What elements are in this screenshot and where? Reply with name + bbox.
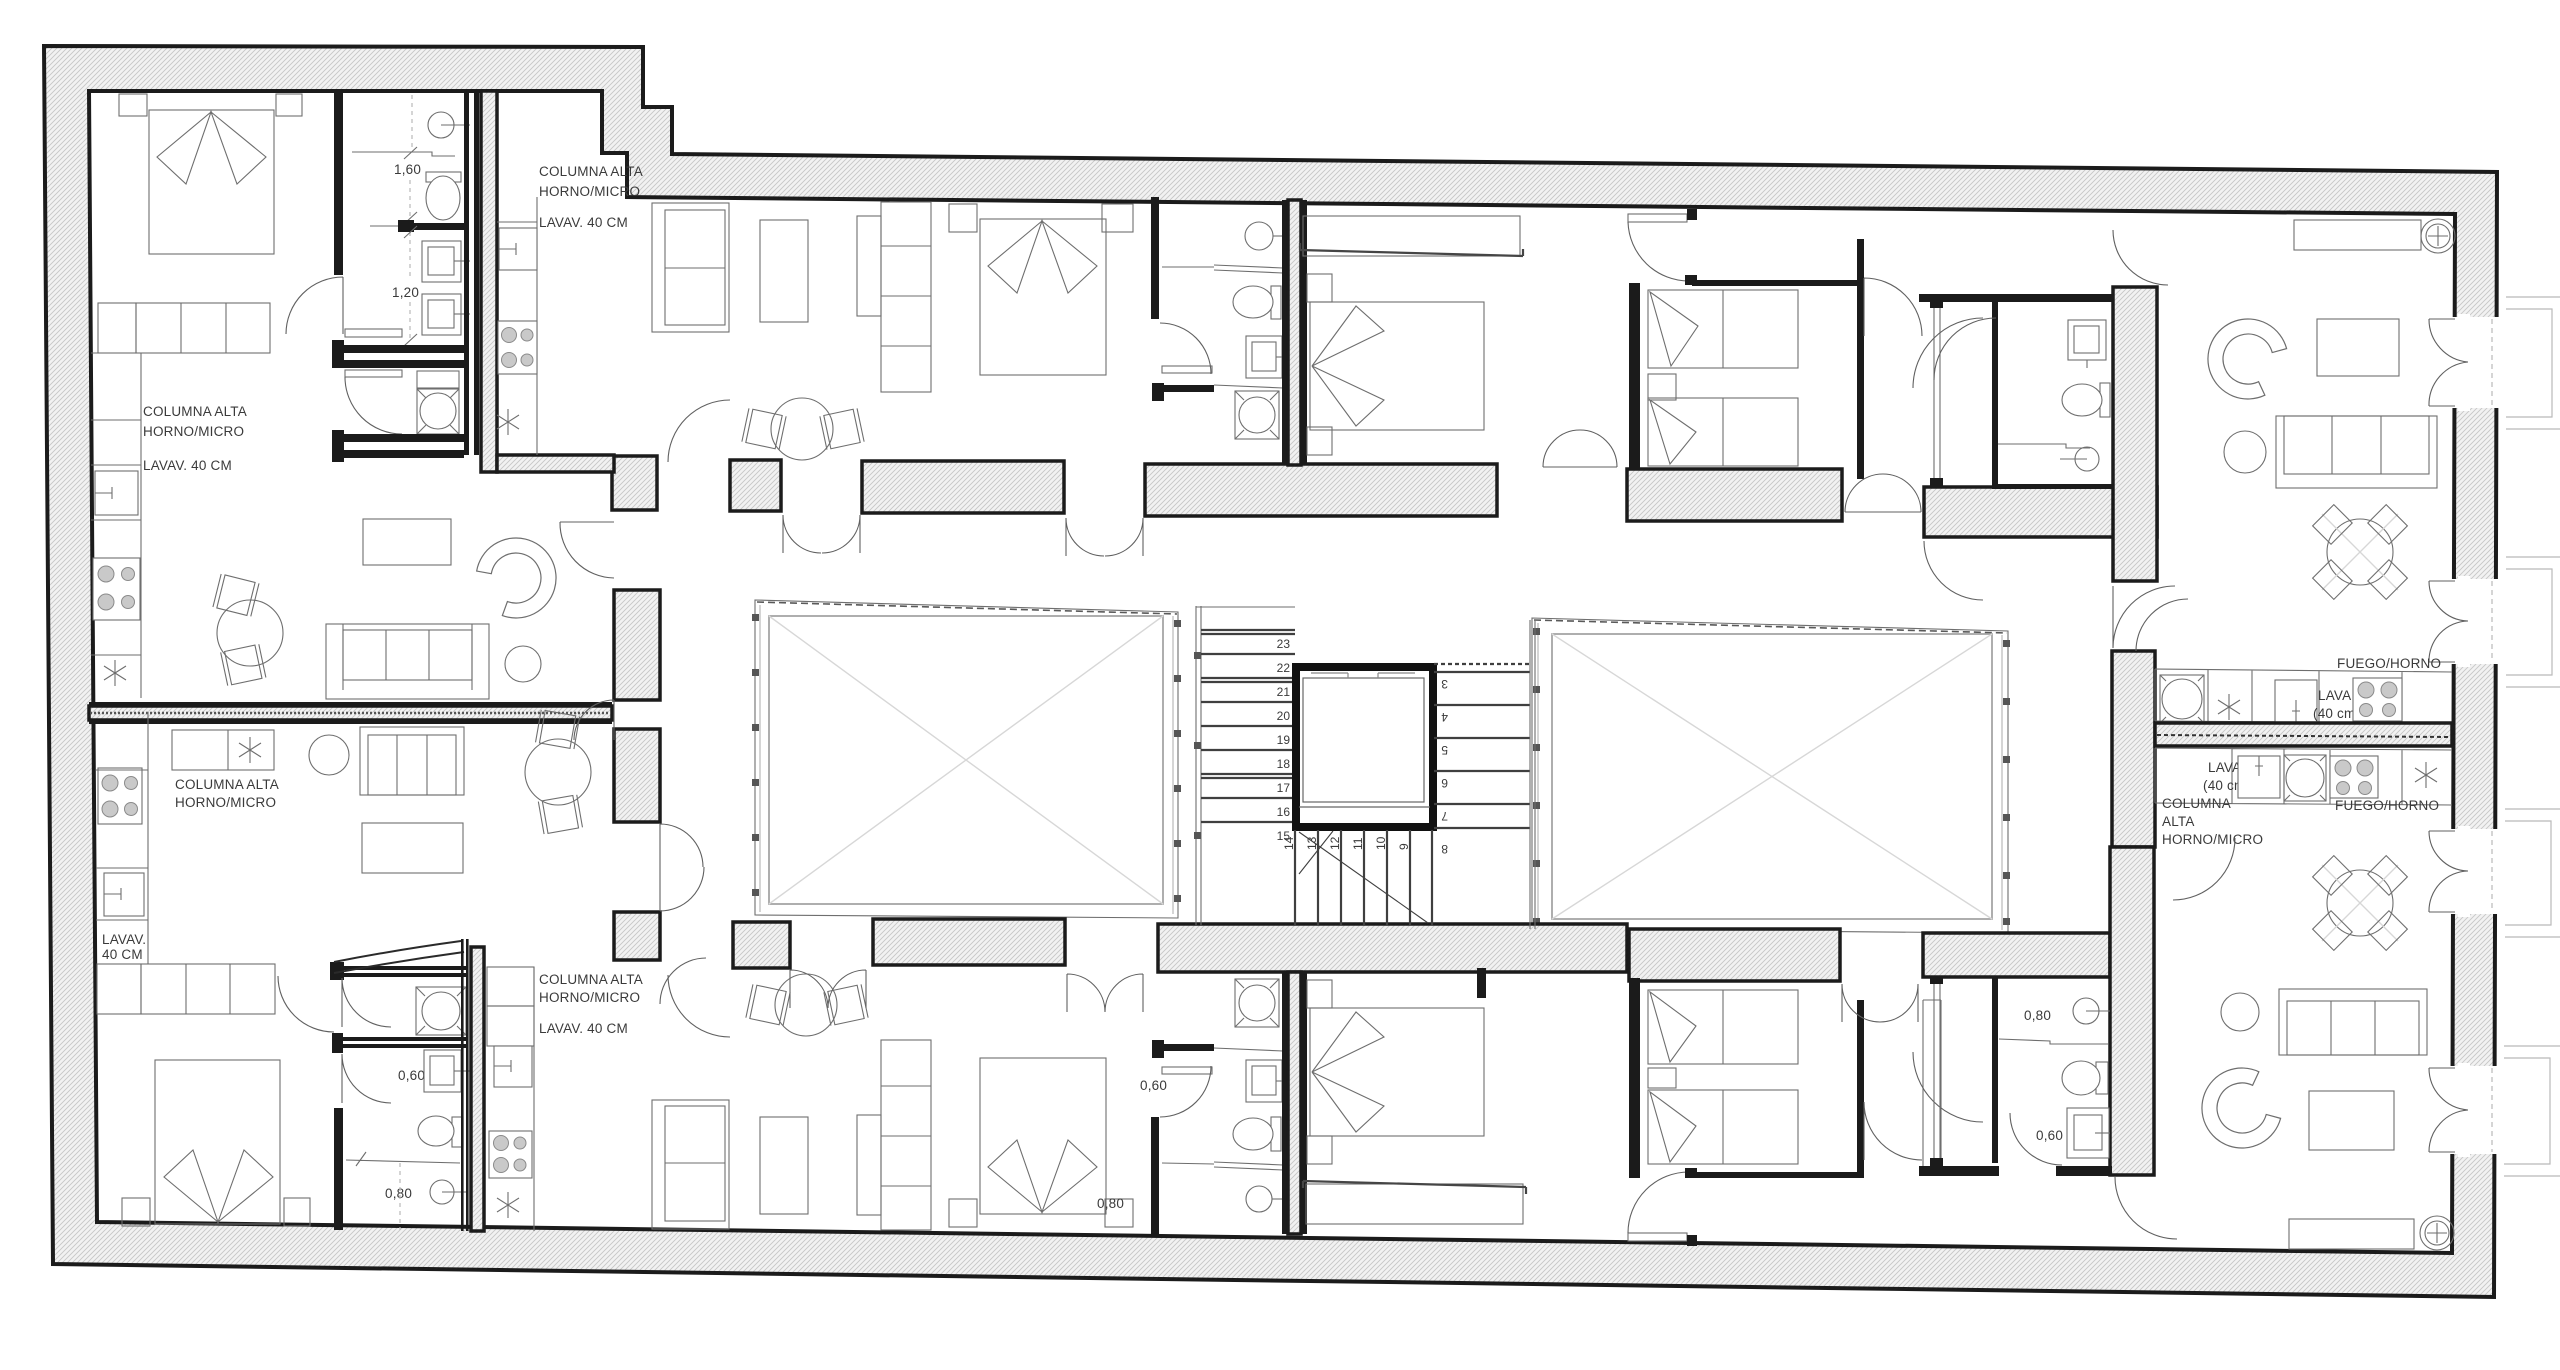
svg-text:COLUMNA ALTA: COLUMNA ALTA [143,404,247,419]
svg-text:FUEGO/HORNO: FUEGO/HORNO [2335,798,2439,813]
svg-text:COLUMNA ALTA: COLUMNA ALTA [539,972,643,987]
svg-text:11: 11 [1351,837,1365,850]
svg-text:12: 12 [1328,836,1342,850]
svg-text:6: 6 [1441,776,1448,790]
svg-text:14: 14 [1282,836,1296,850]
svg-text:8: 8 [1441,842,1448,856]
svg-text:17: 17 [1277,781,1291,795]
svg-text:13: 13 [1305,836,1319,850]
svg-text:FUEGO/HORNO: FUEGO/HORNO [2337,656,2441,671]
svg-text:0,60: 0,60 [1140,1078,1167,1093]
svg-text:40 CM: 40 CM [102,947,143,962]
svg-text:COLUMNA ALTA: COLUMNA ALTA [539,164,643,179]
svg-text:HORNO/MICRO: HORNO/MICRO [2162,832,2263,847]
svg-text:16: 16 [1277,805,1291,819]
svg-text:21: 21 [1277,685,1291,699]
svg-text:LAVA: LAVA [2208,760,2241,775]
svg-text:LAVAV. 40 CM: LAVAV. 40 CM [143,458,232,473]
svg-text:7: 7 [1441,809,1448,823]
svg-text:LAVA: LAVA [2318,688,2351,703]
svg-text:22: 22 [1277,661,1291,675]
svg-text:COLUMNA: COLUMNA [2162,796,2231,811]
svg-text:HORNO/MICRO: HORNO/MICRO [539,184,640,199]
svg-text:23: 23 [1277,637,1291,651]
svg-text:3: 3 [1441,677,1448,691]
svg-text:ALTA: ALTA [2162,814,2195,829]
svg-text:COLUMNA ALTA: COLUMNA ALTA [175,777,279,792]
svg-text:HORNO/MICRO: HORNO/MICRO [539,990,640,1005]
svg-text:0,80: 0,80 [1097,1196,1124,1211]
svg-text:4: 4 [1441,710,1448,724]
svg-text:HORNO/MICRO: HORNO/MICRO [143,424,244,439]
svg-text:18: 18 [1277,757,1291,771]
svg-text:19: 19 [1277,733,1291,747]
svg-text:9: 9 [1397,843,1411,850]
svg-text:LAVAV. 40 CM: LAVAV. 40 CM [539,1021,628,1036]
svg-text:LAVAV.: LAVAV. [102,932,146,947]
svg-text:0,80: 0,80 [2024,1008,2051,1023]
svg-text:0,60: 0,60 [398,1068,425,1083]
svg-text:1,60: 1,60 [394,162,421,177]
svg-text:1,20: 1,20 [392,285,419,300]
svg-text:10: 10 [1374,836,1388,850]
svg-text:20: 20 [1277,709,1291,723]
svg-text:LAVAV. 40 CM: LAVAV. 40 CM [539,215,628,230]
svg-text:0,60: 0,60 [2036,1128,2063,1143]
svg-text:HORNO/MICRO: HORNO/MICRO [175,795,276,810]
svg-text:5: 5 [1441,743,1448,757]
svg-text:0,80: 0,80 [385,1186,412,1201]
